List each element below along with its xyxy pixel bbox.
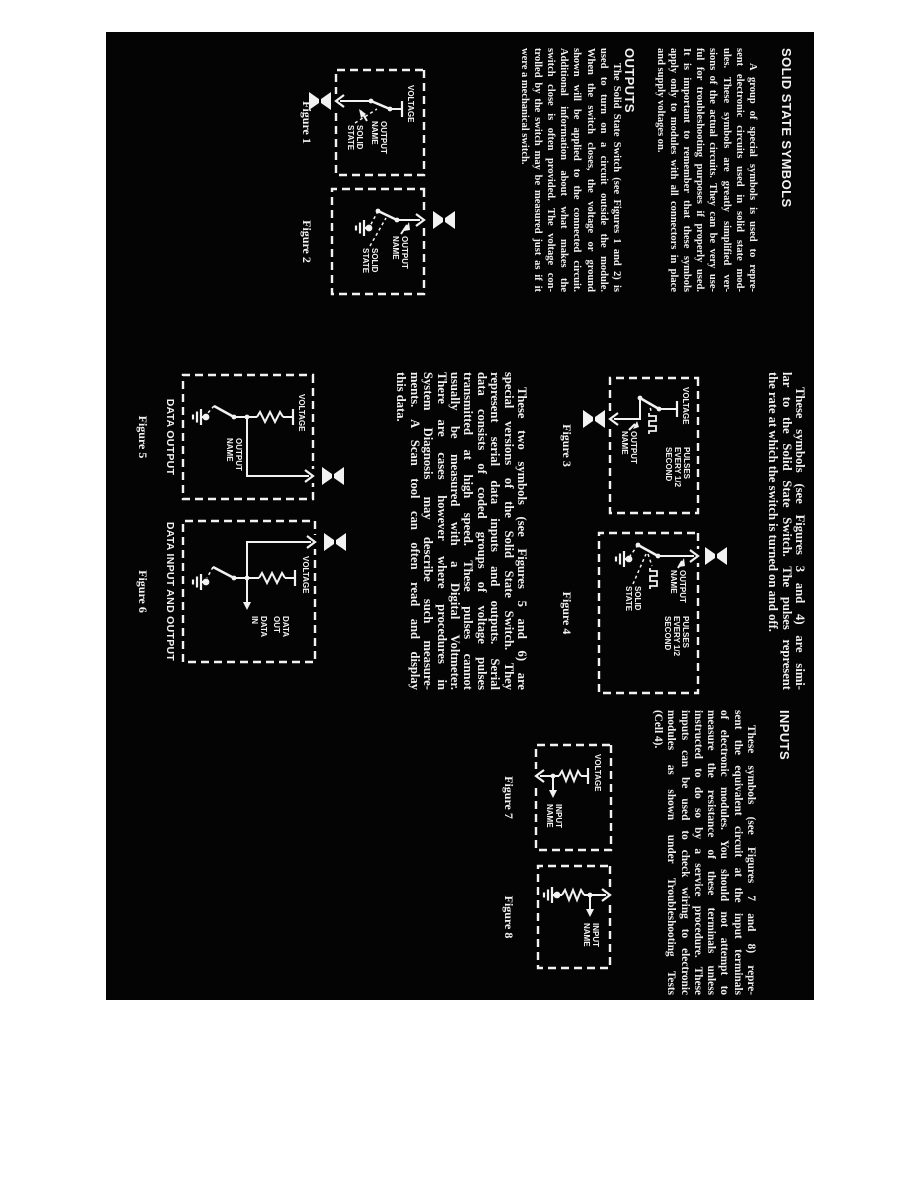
voltage-label: VOLTAGE bbox=[406, 85, 415, 123]
harness-connector-icon bbox=[433, 211, 455, 229]
svg-text:VOLTAGE: VOLTAGE bbox=[297, 394, 306, 432]
harness-connector-icon bbox=[324, 533, 346, 551]
svg-text:OUTPUT: OUTPUT bbox=[379, 121, 388, 154]
text-line: ful for troubleshooting purposes if prop… bbox=[693, 48, 706, 292]
svg-text:NAME: NAME bbox=[669, 570, 678, 594]
figure-4-caption: Figure 4 bbox=[559, 528, 574, 698]
pulse-waveform-icon bbox=[650, 568, 657, 589]
harness-connector-icon bbox=[583, 410, 605, 428]
ground-icon bbox=[544, 887, 559, 903]
heading-inputs: INPUTS bbox=[777, 710, 792, 995]
svg-text:OUTPUT: OUTPUT bbox=[400, 236, 409, 269]
svg-text:VOLTAGE: VOLTAGE bbox=[301, 556, 310, 594]
text-line: trolled by the switch may be measured ju… bbox=[531, 48, 544, 292]
svg-text:VOLTAGE: VOLTAGE bbox=[593, 754, 602, 792]
svg-text:PULSES: PULSES bbox=[682, 447, 691, 480]
pulse-waveform-icon bbox=[649, 413, 656, 434]
svg-text:STATE: STATE bbox=[346, 125, 355, 151]
svg-text:OUT: OUT bbox=[272, 616, 281, 633]
svg-text:OUTPUT: OUTPUT bbox=[629, 431, 638, 464]
figure-6-diagram: VOLTAGE DATA OUT DATA IN bbox=[183, 516, 347, 667]
figure-6-caption: Figure 6 bbox=[135, 516, 150, 667]
scanned-manual-page: SOLID STATE SYMBOLS A group of special s… bbox=[0, 0, 918, 1188]
text-line: There are cases however where procedures… bbox=[434, 372, 447, 690]
figure-7-diagram: VOLTAGE INPUT NAME bbox=[529, 740, 613, 855]
text-line: data consists of coded groups of voltage… bbox=[474, 372, 487, 690]
figure-8-diagram: INPUT NAME bbox=[530, 861, 614, 973]
text-line: special versions of the Solid State Swit… bbox=[501, 372, 514, 690]
figure-5-diagram: VOLTAGE OUTPUT NAME bbox=[181, 370, 345, 504]
text-line: System Diagnosis may describe such measu… bbox=[421, 372, 434, 690]
data-arrow-icon bbox=[243, 602, 251, 610]
heading-outputs: OUTPUTS bbox=[622, 48, 637, 292]
text-line: sions of the actual circuits. They can b… bbox=[706, 48, 719, 292]
text-line: usually be measured with a Digital Voltm… bbox=[448, 372, 461, 690]
figure-2-caption: Figure 2 bbox=[299, 184, 314, 299]
text-line: represent serial data inputs and outputs… bbox=[488, 372, 501, 690]
text-line: These symbols (see Figures 3 and 4) are … bbox=[793, 372, 806, 690]
ground-icon bbox=[356, 220, 371, 236]
text-line: ules. These symbols are greatly simplifi… bbox=[719, 48, 732, 292]
page-black-area: SOLID STATE SYMBOLS A group of special s… bbox=[106, 32, 814, 1000]
switch-blade-icon bbox=[214, 406, 234, 417]
text-line: It is important to remember that these s… bbox=[680, 48, 693, 292]
figure-1-caption: Figure 1 bbox=[299, 65, 314, 180]
paragraph-solid-state-symbols: A group of special symbols is used to re… bbox=[653, 48, 759, 292]
text-line: apply only to modules with all connector… bbox=[667, 48, 680, 292]
svg-text:STATE: STATE bbox=[361, 248, 370, 274]
resistor-icon bbox=[257, 412, 283, 422]
text-line: sent electronic circuits used in solid s… bbox=[733, 48, 746, 292]
svg-text:SOLID: SOLID bbox=[355, 125, 364, 150]
figure-3-caption: Figure 3 bbox=[559, 373, 574, 518]
figure-7-caption: Figure 7 bbox=[501, 740, 516, 855]
svg-text:DATA: DATA bbox=[259, 616, 268, 637]
text-line: These symbols (see Figures 7 and 8) repr… bbox=[744, 710, 757, 995]
svg-text:STATE: STATE bbox=[624, 586, 633, 612]
text-line: These two symbols (see Figures 5 and 6) … bbox=[515, 372, 528, 690]
text-line: Additional information about what makes … bbox=[557, 48, 570, 292]
text-line: lar to the Solid State Switch. The pulse… bbox=[779, 372, 792, 690]
svg-text:INPUT: INPUT bbox=[591, 923, 600, 947]
paragraph-inputs: These symbols (see Figures 7 and 8) repr… bbox=[651, 710, 757, 995]
figure-4-diagram: OUTPUT NAME PULSES EVERY 1/2 SECOND SOLI… bbox=[594, 528, 728, 698]
paragraph-serial-data: These two symbols (see Figures 5 and 6) … bbox=[394, 372, 528, 690]
text-line: inputs can be used to check wiring to el… bbox=[677, 710, 690, 995]
svg-text:NAME: NAME bbox=[582, 923, 591, 947]
harness-connector-icon bbox=[705, 547, 727, 565]
svg-text:OUTPUT: OUTPUT bbox=[234, 438, 243, 471]
harness-connector-icon bbox=[322, 467, 344, 485]
resistor-icon bbox=[562, 890, 584, 900]
svg-text:NAME: NAME bbox=[545, 804, 554, 828]
text-line: modules as shown under Troubleshooting T… bbox=[664, 710, 677, 995]
svg-text:SECOND: SECOND bbox=[663, 616, 672, 650]
svg-text:SOLID: SOLID bbox=[633, 586, 642, 611]
text-line: the rate at which the switch is turned o… bbox=[766, 372, 779, 690]
svg-text:EVERY 1/2: EVERY 1/2 bbox=[673, 447, 682, 488]
paragraph-outputs: The Solid State Switch (see Figures 1 an… bbox=[517, 48, 623, 292]
svg-text:IN: IN bbox=[250, 616, 259, 624]
svg-text:DATA: DATA bbox=[281, 616, 290, 637]
svg-text:EVERY 1/2: EVERY 1/2 bbox=[672, 616, 681, 657]
svg-text:VOLTAGE: VOLTAGE bbox=[681, 387, 690, 425]
resistor-icon bbox=[559, 771, 581, 781]
figure-5-title: DATA OUTPUT bbox=[164, 370, 176, 504]
text-line: used to turn on a circuit outside the mo… bbox=[597, 48, 610, 292]
input-arrow-icon bbox=[586, 909, 594, 917]
text-line: sent the equivalent circuit at the input… bbox=[730, 710, 743, 995]
svg-text:SOLID: SOLID bbox=[370, 248, 379, 273]
text-line: of electronic modules. You should not at… bbox=[717, 710, 730, 995]
heading-solid-state-symbols: SOLID STATE SYMBOLS bbox=[779, 48, 794, 292]
svg-text:SECOND: SECOND bbox=[664, 447, 673, 481]
text-line: shown will be applied to the connected c… bbox=[570, 48, 583, 292]
text-line: instructed to do so by a service procedu… bbox=[691, 710, 704, 995]
figure-8-caption: Figure 8 bbox=[501, 861, 516, 973]
text-line: switch close is often provided. The volt… bbox=[544, 48, 557, 292]
text-line: ments. A Scan tool can often read and di… bbox=[407, 372, 420, 690]
text-line: The Solid State Switch (see Figures 1 an… bbox=[610, 48, 623, 292]
svg-text:OUTPUT: OUTPUT bbox=[678, 570, 687, 603]
ground-icon bbox=[193, 409, 208, 425]
paragraph-pulsed-switch: These symbols (see Figures 3 and 4) are … bbox=[766, 372, 806, 690]
figure-2-diagram: OUTPUT NAME SOLID STATE bbox=[325, 184, 457, 299]
svg-text:NAME: NAME bbox=[370, 121, 379, 145]
input-arrow-icon bbox=[549, 790, 557, 798]
text-line: were a mechanical switch. bbox=[517, 48, 530, 292]
text-line: A group of special symbols is used to re… bbox=[746, 48, 759, 292]
svg-text:PULSES: PULSES bbox=[681, 616, 690, 649]
resistor-icon bbox=[259, 573, 285, 583]
figure-1-diagram: VOLTAGE OUTPUT NAME SOLID STATE bbox=[299, 65, 425, 180]
svg-text:NAME: NAME bbox=[225, 438, 234, 462]
switch-blade-icon bbox=[371, 101, 390, 109]
svg-text:INPUT: INPUT bbox=[554, 804, 563, 828]
text-line: this data. bbox=[394, 372, 407, 690]
switch-blade-icon bbox=[213, 567, 234, 578]
text-line: transmitted at high speed. These pulses … bbox=[461, 372, 474, 690]
figure-3-diagram: VOLTAGE PULSES EVERY 1/2 SECOND OUTPUT N… bbox=[571, 373, 699, 518]
svg-text:NAME: NAME bbox=[620, 431, 629, 455]
text-line: When the switch closes, the voltage or g… bbox=[583, 48, 596, 292]
text-line: (Cell 4). bbox=[651, 710, 664, 995]
text-line: measure the resistance of these terminal… bbox=[704, 710, 717, 995]
figure-5-caption: Figure 5 bbox=[135, 370, 150, 504]
ground-icon bbox=[193, 574, 208, 590]
svg-text:NAME: NAME bbox=[391, 236, 400, 260]
text-line: and supply voltages on. bbox=[653, 48, 666, 292]
switch-blade-icon bbox=[378, 211, 397, 220]
ground-icon bbox=[616, 551, 631, 567]
figure-6-title: DATA INPUT AND OUTPUT bbox=[164, 516, 176, 667]
